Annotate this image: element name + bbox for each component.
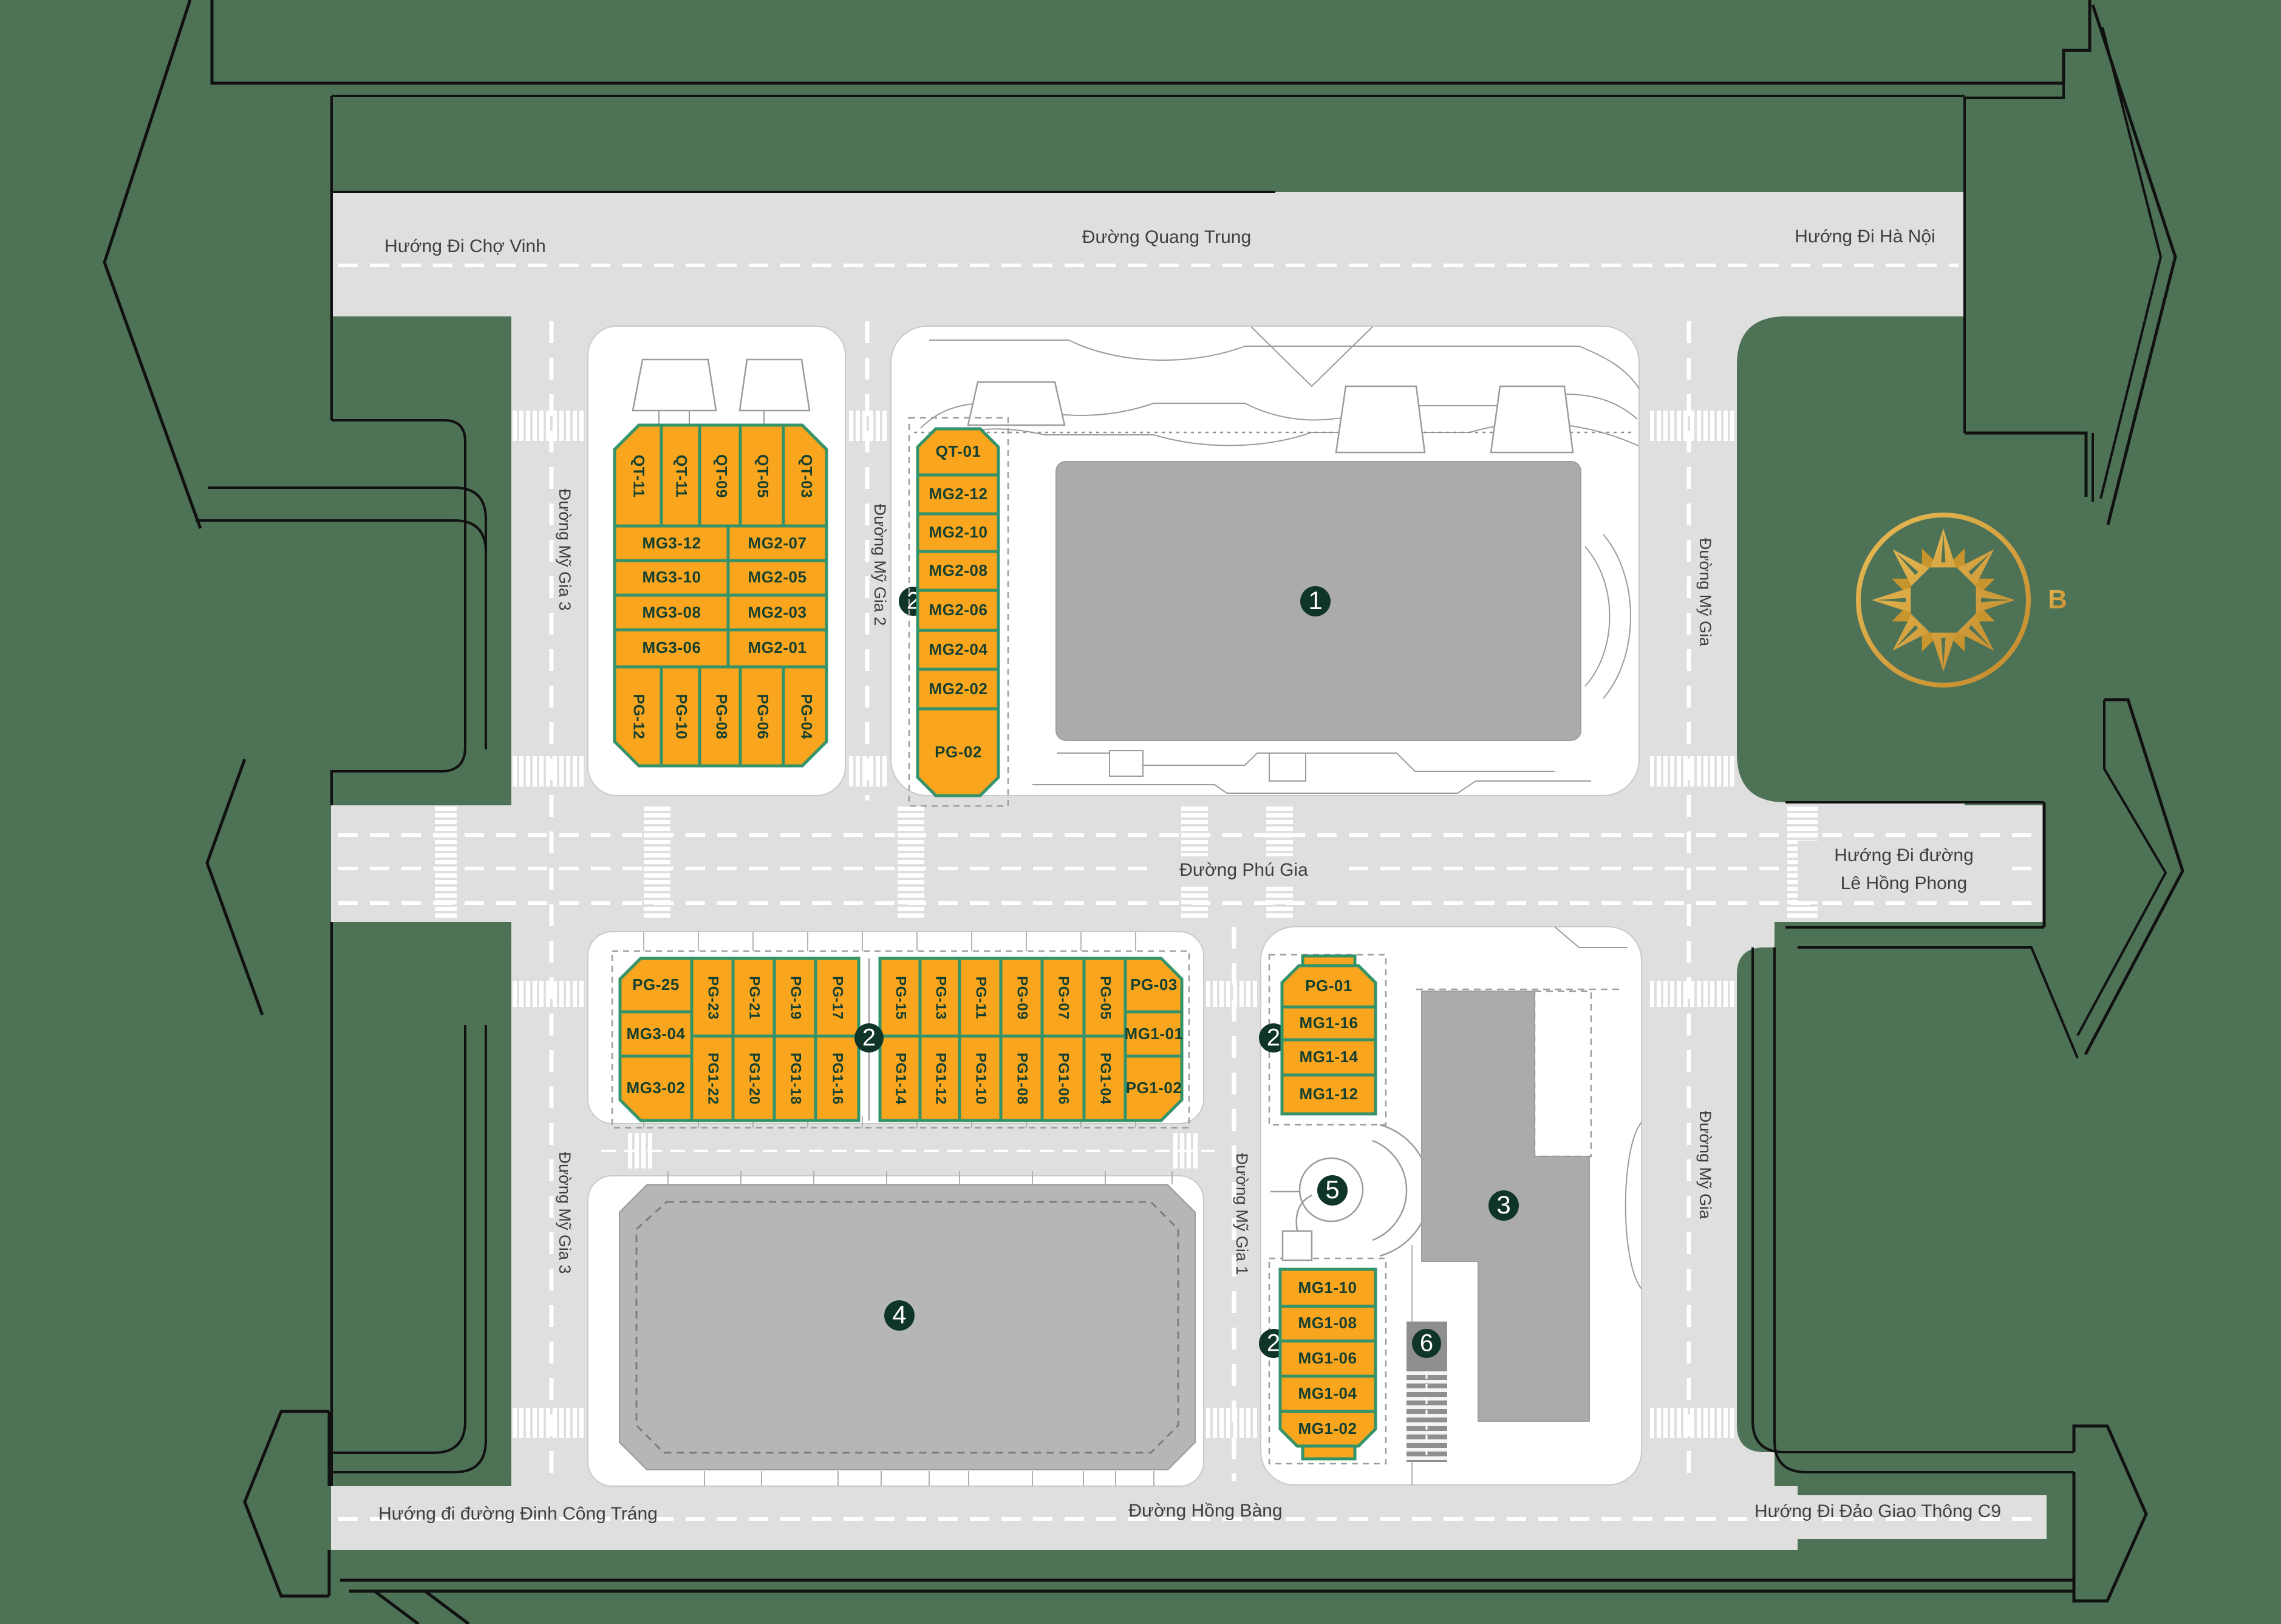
svg-text:PG1-12: PG1-12 bbox=[933, 1053, 949, 1105]
svg-text:MG3-10: MG3-10 bbox=[643, 568, 701, 586]
svg-text:MG3-08: MG3-08 bbox=[643, 603, 701, 621]
svg-text:Đường Mỹ Gia 3: Đường Mỹ Gia 3 bbox=[556, 1152, 574, 1274]
svg-text:PG-15: PG-15 bbox=[893, 976, 909, 1020]
svg-text:PG-05: PG-05 bbox=[1097, 976, 1114, 1020]
svg-text:MG3-04: MG3-04 bbox=[627, 1025, 686, 1043]
svg-text:MG2-01: MG2-01 bbox=[748, 638, 807, 657]
svg-text:MG2-10: MG2-10 bbox=[929, 523, 988, 541]
svg-text:PG1-20: PG1-20 bbox=[746, 1053, 763, 1105]
svg-text:PG-11: PG-11 bbox=[973, 977, 989, 1020]
svg-text:QT-05: QT-05 bbox=[754, 454, 771, 498]
svg-text:PG-19: PG-19 bbox=[788, 976, 804, 1020]
svg-text:MG1-10: MG1-10 bbox=[1298, 1278, 1357, 1297]
svg-text:MG3-02: MG3-02 bbox=[627, 1079, 686, 1097]
svg-text:Hướng đi đường Đinh Công Tráng: Hướng đi đường Đinh Công Tráng bbox=[378, 1504, 658, 1524]
svg-text:MG2-05: MG2-05 bbox=[748, 568, 807, 586]
svg-text:MG1-02: MG1-02 bbox=[1298, 1419, 1357, 1438]
svg-text:PG-21: PG-21 bbox=[746, 976, 763, 1020]
svg-text:MG1-14: MG1-14 bbox=[1300, 1048, 1359, 1066]
svg-text:Hướng Đi Đảo Giao Thông C9: Hướng Đi Đảo Giao Thông C9 bbox=[1754, 1501, 2001, 1521]
svg-text:QT-11: QT-11 bbox=[672, 455, 689, 498]
svg-text:2: 2 bbox=[1267, 1330, 1280, 1357]
svg-text:PG-25: PG-25 bbox=[632, 975, 680, 994]
svg-text:PG1-04: PG1-04 bbox=[1097, 1053, 1114, 1105]
svg-text:PG1-14: PG1-14 bbox=[893, 1053, 909, 1105]
svg-text:Lê Hồng Phong: Lê Hồng Phong bbox=[1841, 873, 1968, 893]
svg-text:PG1-10: PG1-10 bbox=[973, 1053, 989, 1105]
svg-text:Hướng Đi Chợ Vinh: Hướng Đi Chợ Vinh bbox=[384, 236, 546, 256]
svg-text:PG-10: PG-10 bbox=[672, 694, 689, 740]
svg-text:Đường Mỹ Gia 3: Đường Mỹ Gia 3 bbox=[556, 489, 574, 611]
svg-text:PG-23: PG-23 bbox=[705, 976, 721, 1020]
svg-text:MG2-08: MG2-08 bbox=[929, 561, 988, 579]
svg-text:5: 5 bbox=[1325, 1175, 1339, 1204]
svg-text:MG3-12: MG3-12 bbox=[643, 534, 701, 552]
svg-text:PG-08: PG-08 bbox=[712, 694, 729, 740]
svg-text:PG-01: PG-01 bbox=[1305, 977, 1352, 995]
svg-text:PG-03: PG-03 bbox=[1130, 975, 1178, 994]
svg-text:PG-06: PG-06 bbox=[754, 694, 771, 740]
svg-text:QT-01: QT-01 bbox=[936, 442, 981, 460]
svg-text:PG1-02: PG1-02 bbox=[1126, 1079, 1182, 1097]
svg-text:PG-09: PG-09 bbox=[1014, 976, 1031, 1020]
svg-text:3: 3 bbox=[1496, 1190, 1510, 1219]
svg-text:PG-04: PG-04 bbox=[797, 694, 814, 740]
svg-text:Đường Mỹ Gia: Đường Mỹ Gia bbox=[1696, 538, 1714, 647]
svg-text:Đường Mỹ Gia 2: Đường Mỹ Gia 2 bbox=[871, 504, 889, 626]
svg-text:2: 2 bbox=[862, 1025, 876, 1051]
svg-text:Hướng Đi đường: Hướng Đi đường bbox=[1834, 845, 1974, 865]
svg-text:PG1-22: PG1-22 bbox=[705, 1053, 721, 1105]
svg-text:PG-17: PG-17 bbox=[830, 976, 846, 1020]
svg-text:PG-07: PG-07 bbox=[1055, 976, 1072, 1020]
svg-text:MG2-12: MG2-12 bbox=[929, 485, 988, 503]
svg-text:QT-09: QT-09 bbox=[712, 454, 729, 498]
svg-text:PG1-16: PG1-16 bbox=[830, 1053, 846, 1105]
svg-text:MG3-06: MG3-06 bbox=[643, 638, 701, 657]
svg-text:MG2-02: MG2-02 bbox=[929, 680, 988, 698]
svg-text:Đường Mỹ Gia: Đường Mỹ Gia bbox=[1696, 1111, 1714, 1220]
svg-text:MG2-06: MG2-06 bbox=[929, 601, 988, 619]
svg-text:MG1-12: MG1-12 bbox=[1300, 1085, 1359, 1103]
svg-text:Hướng Đi Hà Nội: Hướng Đi Hà Nội bbox=[1795, 227, 1935, 247]
svg-text:6: 6 bbox=[1420, 1330, 1433, 1357]
svg-text:Đường Hồng Bàng: Đường Hồng Bàng bbox=[1128, 1501, 1282, 1521]
svg-text:MG2-03: MG2-03 bbox=[748, 603, 807, 621]
svg-text:PG1-18: PG1-18 bbox=[788, 1053, 804, 1105]
svg-text:MG1-06: MG1-06 bbox=[1298, 1349, 1357, 1367]
svg-text:B: B bbox=[2048, 585, 2067, 615]
svg-text:MG1-08: MG1-08 bbox=[1298, 1314, 1357, 1332]
svg-text:MG2-07: MG2-07 bbox=[748, 534, 807, 552]
svg-text:Đường Mỹ Gia 1: Đường Mỹ Gia 1 bbox=[1233, 1153, 1251, 1275]
svg-text:4: 4 bbox=[892, 1300, 906, 1329]
svg-text:MG1-16: MG1-16 bbox=[1300, 1014, 1359, 1032]
svg-text:MG1-04: MG1-04 bbox=[1298, 1384, 1357, 1402]
svg-text:Đường Quang Trung: Đường Quang Trung bbox=[1082, 227, 1251, 247]
svg-text:QT-03: QT-03 bbox=[797, 454, 814, 498]
svg-text:PG-02: PG-02 bbox=[935, 743, 982, 761]
svg-text:PG1-06: PG1-06 bbox=[1055, 1053, 1072, 1105]
svg-text:Đường Phú Gia: Đường Phú Gia bbox=[1179, 860, 1308, 880]
svg-text:1: 1 bbox=[1308, 586, 1322, 615]
svg-text:QT-11: QT-11 bbox=[630, 455, 647, 498]
svg-text:PG1-08: PG1-08 bbox=[1014, 1053, 1031, 1105]
svg-text:MG1-01: MG1-01 bbox=[1125, 1025, 1184, 1043]
svg-text:PG-12: PG-12 bbox=[630, 694, 647, 740]
svg-text:PG-13: PG-13 bbox=[933, 976, 949, 1020]
svg-text:MG2-04: MG2-04 bbox=[929, 640, 988, 658]
svg-text:2: 2 bbox=[1267, 1025, 1280, 1051]
